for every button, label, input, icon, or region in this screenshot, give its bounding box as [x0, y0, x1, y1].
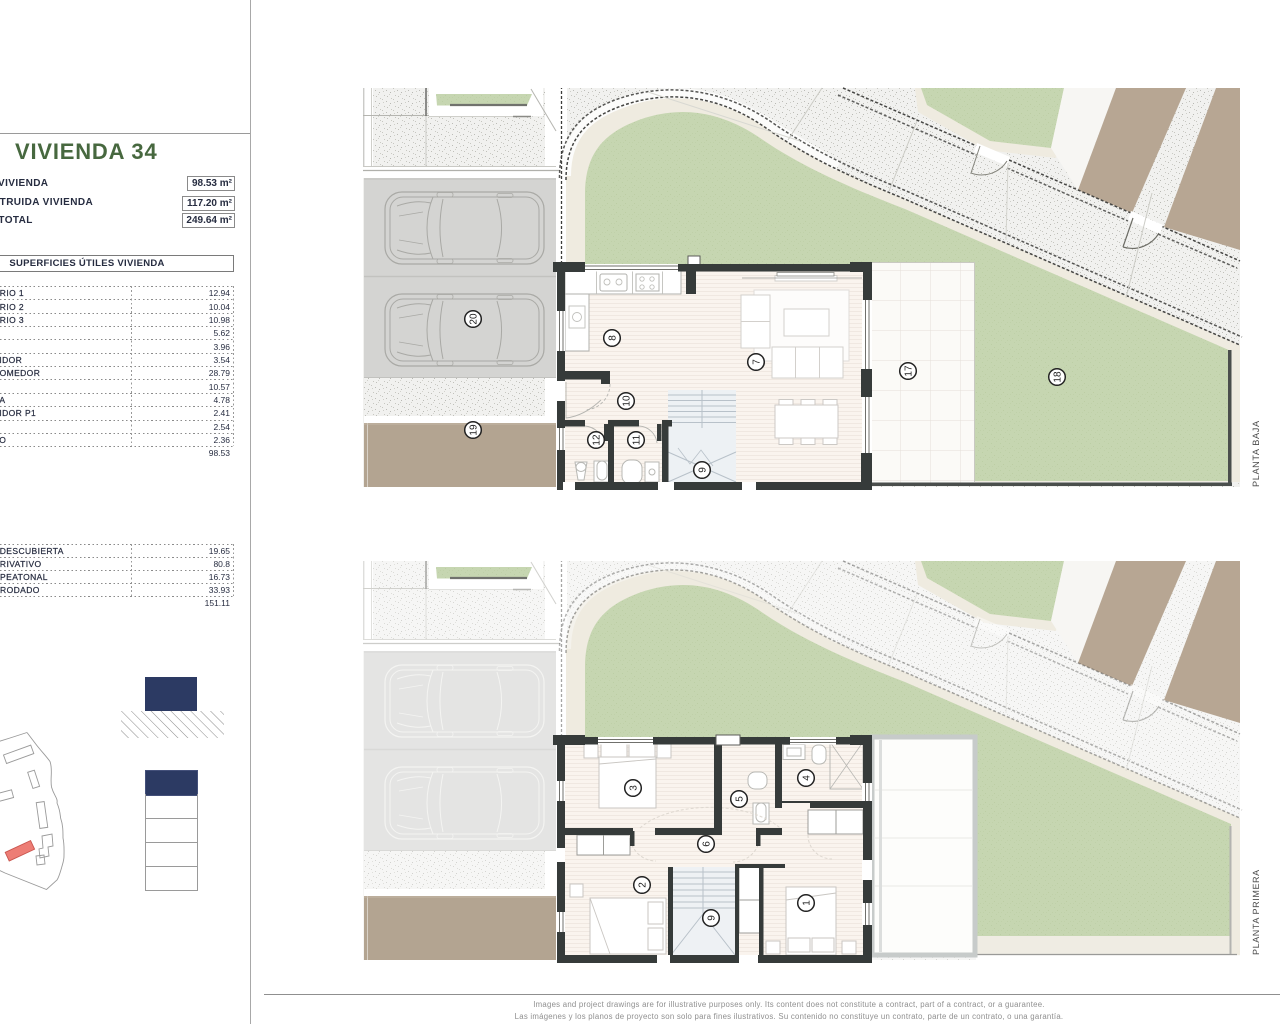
svg-text:20: 20 — [469, 313, 480, 325]
svg-text:2: 2 — [638, 882, 649, 888]
svg-text:5: 5 — [735, 796, 746, 802]
svg-text:17: 17 — [904, 365, 915, 377]
svg-text:4: 4 — [802, 775, 813, 781]
svg-text:3: 3 — [629, 785, 640, 791]
svg-text:PLANTA PRIMERA: PLANTA PRIMERA — [1251, 869, 1261, 955]
svg-text:7: 7 — [752, 359, 763, 365]
svg-text:9: 9 — [698, 467, 709, 473]
svg-text:10: 10 — [622, 395, 633, 407]
svg-text:PLANTA BAJA: PLANTA BAJA — [1251, 420, 1261, 487]
svg-text:6: 6 — [702, 841, 713, 847]
svg-text:8: 8 — [608, 335, 619, 341]
svg-text:1: 1 — [802, 900, 813, 906]
svg-text:19: 19 — [469, 424, 480, 436]
svg-text:11: 11 — [632, 434, 643, 445]
svg-text:18: 18 — [1053, 371, 1064, 383]
svg-text:9: 9 — [707, 915, 718, 921]
svg-text:12: 12 — [592, 434, 603, 446]
